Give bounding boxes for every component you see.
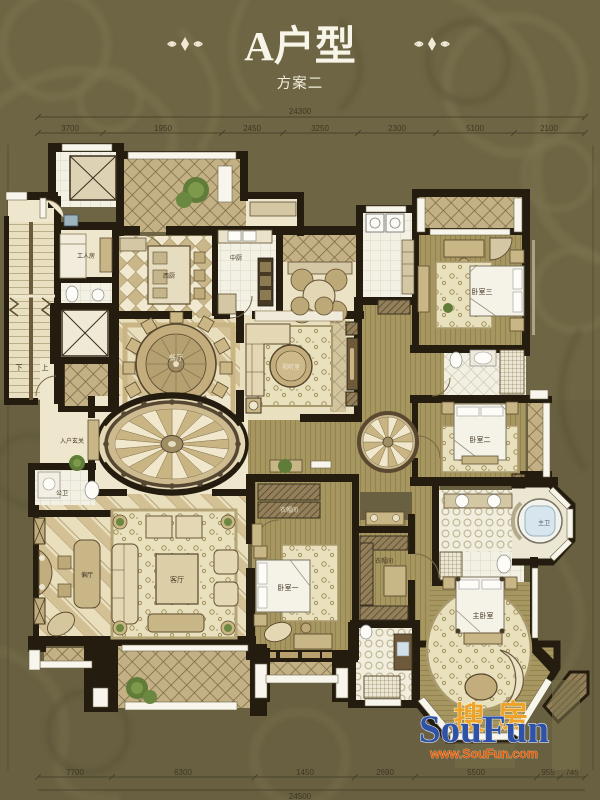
- svg-text:3700: 3700: [61, 124, 79, 133]
- svg-text:www.SouFun.com: www.SouFun.com: [429, 747, 538, 761]
- svg-text:24500: 24500: [289, 792, 312, 800]
- svg-text:2300: 2300: [388, 124, 406, 133]
- svg-text:视听室: 视听室: [282, 363, 300, 371]
- svg-text:方案二: 方案二: [277, 74, 324, 92]
- svg-text:衣帽间: 衣帽间: [280, 506, 298, 514]
- svg-text:衣帽间: 衣帽间: [375, 557, 393, 565]
- svg-text:A户型: A户型: [244, 23, 356, 69]
- svg-text:偏厅: 偏厅: [81, 571, 93, 579]
- svg-text:卧室三: 卧室三: [472, 287, 493, 296]
- svg-text:1450: 1450: [296, 768, 314, 777]
- svg-text:西厨: 西厨: [163, 273, 175, 280]
- svg-text:2690: 2690: [376, 768, 394, 777]
- svg-text:7700: 7700: [66, 768, 84, 777]
- svg-text:下: 下: [16, 364, 23, 372]
- svg-text:2450: 2450: [243, 124, 261, 133]
- svg-text:6300: 6300: [174, 768, 192, 777]
- svg-text:上: 上: [42, 363, 49, 372]
- svg-text:主卧室: 主卧室: [473, 611, 494, 620]
- svg-text:卧室一: 卧室一: [278, 583, 299, 592]
- svg-text:餐厅: 餐厅: [169, 353, 183, 362]
- svg-text:卧室二: 卧室二: [470, 435, 491, 444]
- svg-text:1950: 1950: [154, 124, 172, 133]
- svg-text:工人房: 工人房: [77, 252, 95, 260]
- svg-text:5500: 5500: [467, 768, 485, 777]
- svg-text:24300: 24300: [289, 107, 312, 116]
- svg-text:3250: 3250: [311, 124, 329, 133]
- svg-text:公卫: 公卫: [56, 490, 68, 497]
- svg-text:2100: 2100: [540, 124, 558, 133]
- svg-text:中厨: 中厨: [230, 254, 242, 262]
- svg-text:5100: 5100: [466, 124, 484, 133]
- svg-text:入户玄关: 入户玄关: [60, 437, 84, 445]
- svg-text:主卫: 主卫: [538, 519, 550, 527]
- svg-text:客厅: 客厅: [170, 575, 184, 584]
- svg-text:SouFun: SouFun: [419, 708, 549, 751]
